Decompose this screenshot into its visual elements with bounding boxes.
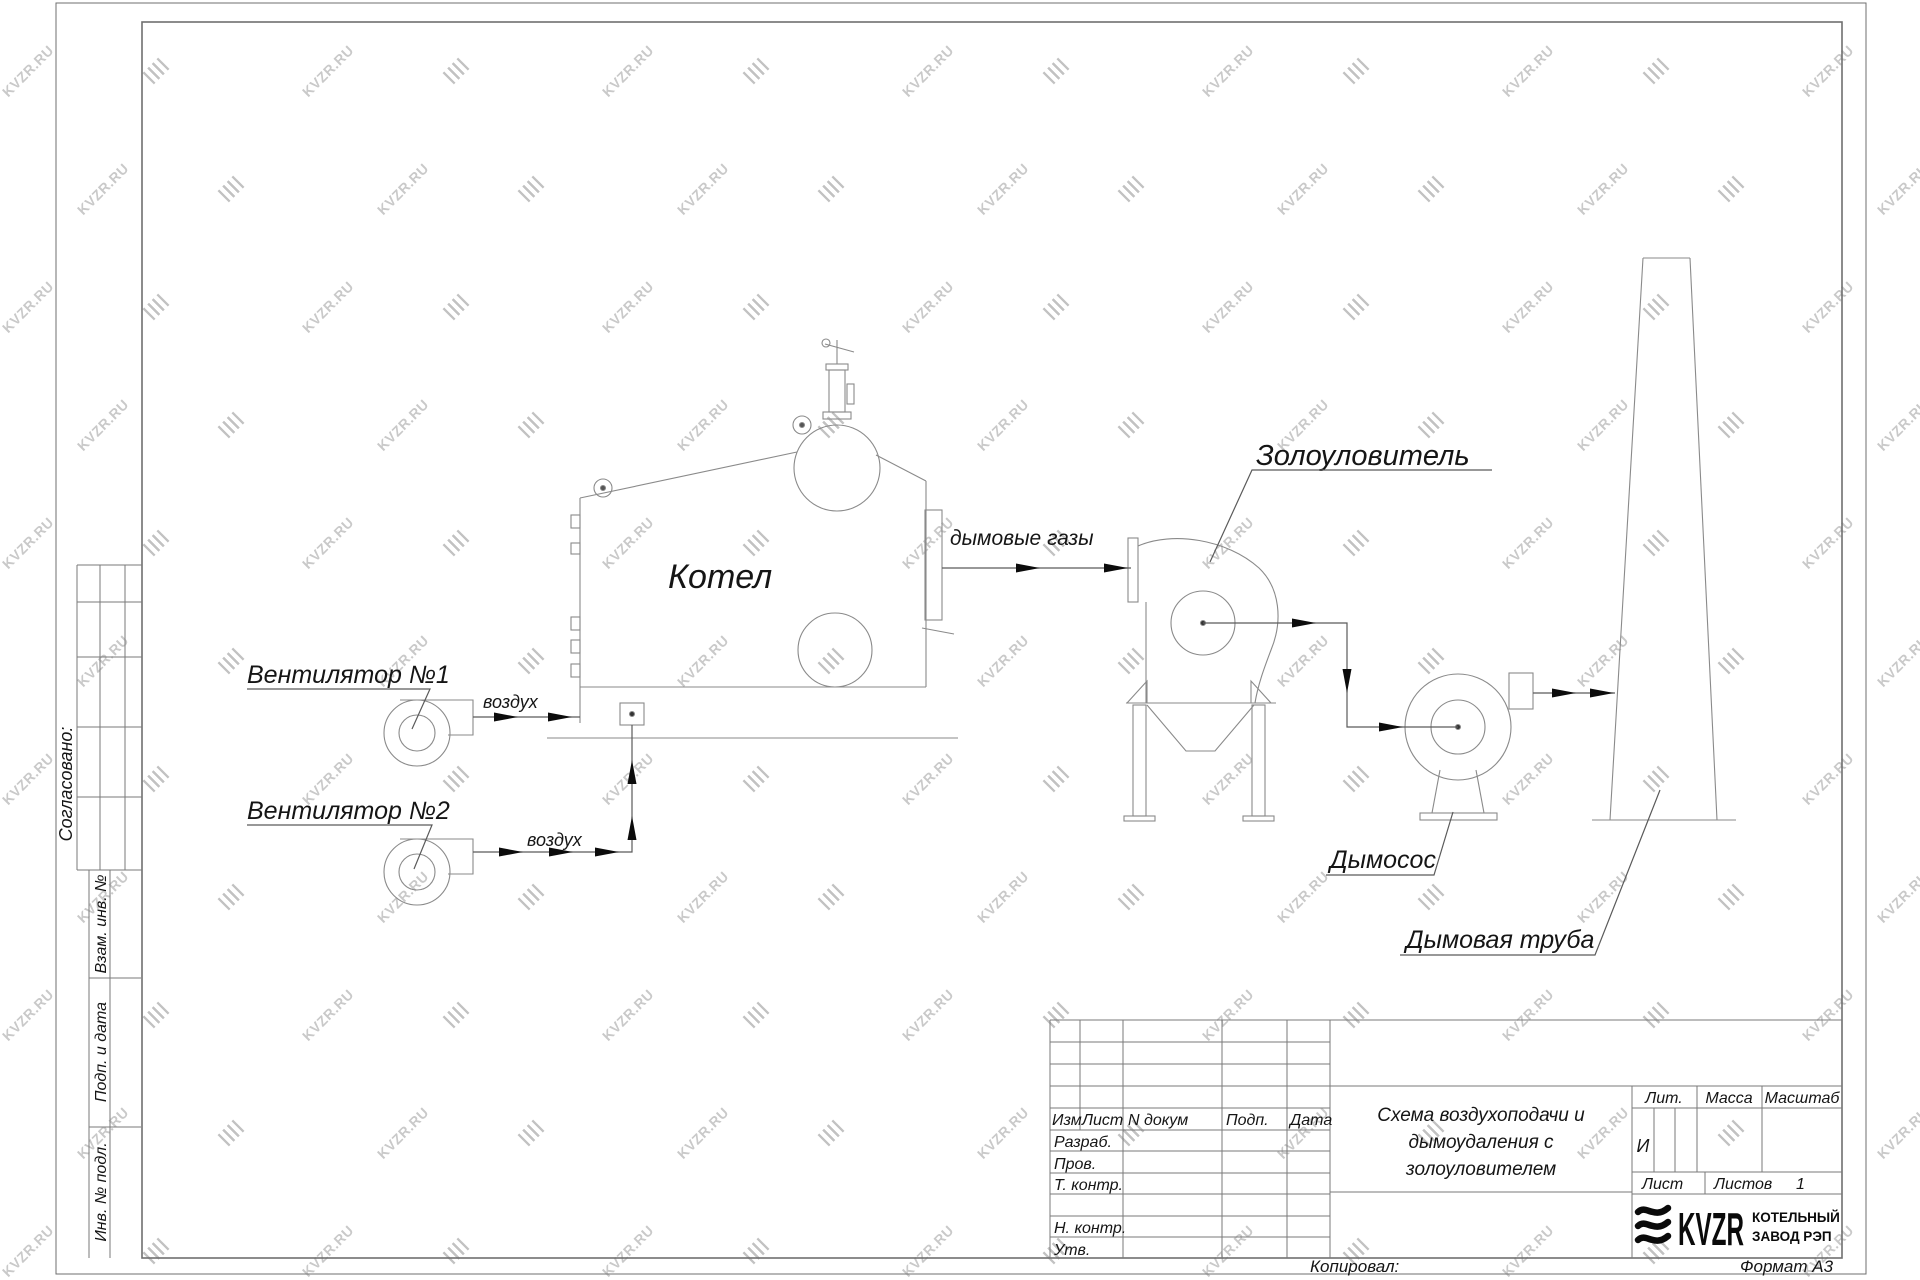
air-label-2: воздух — [527, 830, 583, 850]
podp-data-label: Подп. и дата — [93, 1002, 110, 1102]
doc-title-line2: дымоудаления с — [1408, 1132, 1554, 1153]
boiler-outlet-flange — [925, 510, 942, 620]
col-ndokum: N докум — [1128, 1112, 1188, 1129]
kvzr-logo: KVZR КОТЕЛЬНЫЙ ЗАВОД РЭП — [1638, 1203, 1840, 1255]
listov-value: 1 — [1796, 1176, 1805, 1193]
row-utv: Утв. — [1053, 1242, 1090, 1259]
doc-title-line1: Схема воздухоподачи и — [1377, 1105, 1585, 1126]
fan1-label: Вентилятор №1 — [247, 661, 450, 689]
col-list: Лист — [1081, 1112, 1123, 1129]
masshtab-label: Масштаб — [1765, 1090, 1841, 1107]
col-data: Дата — [1288, 1112, 1332, 1129]
ash-collector-label: Золоуловитель — [1256, 440, 1470, 472]
lit-value: И — [1637, 1136, 1650, 1156]
ash-collector-leader-line — [1210, 470, 1492, 562]
chimney — [1592, 258, 1736, 820]
vzam-inv-label: Взам. инв. № — [93, 875, 110, 974]
doc-title-line3: золоуловителем — [1405, 1159, 1556, 1180]
kvzr-logo-stripes-icon — [1638, 1208, 1668, 1241]
fan-1 — [384, 700, 473, 766]
fan2-leader-line — [247, 825, 432, 869]
approval-table — [77, 565, 142, 870]
chimney-label: Дымовая труба — [1403, 926, 1594, 954]
col-podp: Подп. — [1226, 1112, 1269, 1129]
row-prov: Пров. — [1054, 1156, 1096, 1173]
logo-text: KVZR — [1678, 1203, 1744, 1255]
format-label: Формат А3 — [1740, 1257, 1834, 1276]
logo-caption-line2: ЗАВОД РЭП — [1752, 1229, 1832, 1244]
fan-2 — [384, 839, 473, 905]
lit-label: Лит. — [1644, 1090, 1682, 1107]
cyclone-to-exhauster-line — [1203, 623, 1458, 727]
logo-caption-line1: КОТЕЛЬНЫЙ — [1752, 1210, 1840, 1225]
fan2-label: Вентилятор №2 — [247, 797, 450, 825]
outer-border — [56, 3, 1866, 1274]
list-label: Лист — [1641, 1176, 1683, 1193]
copied-label: Копировал: — [1310, 1257, 1400, 1276]
row-nkontr: Н. контр. — [1054, 1220, 1126, 1237]
row-tkontr: Т. контр. — [1054, 1177, 1123, 1194]
boiler-lower-drum — [798, 613, 872, 687]
inner-frame — [142, 22, 1842, 1258]
col-izm: Изм — [1052, 1112, 1082, 1129]
flue-gases-label: дымовые газы — [950, 527, 1094, 550]
schematic-drawing: Согласовано: Взам. инв. № Подп. и дата И… — [0, 0, 1920, 1280]
boiler-label: Котел — [668, 558, 772, 596]
safety-valve-icon — [822, 339, 854, 419]
boiler-upper-drum — [794, 425, 880, 511]
smoke-exhauster — [1405, 673, 1533, 820]
row-razrab: Разраб. — [1054, 1134, 1112, 1151]
boiler — [547, 339, 958, 738]
smoke-exhauster-label: Дымосос — [1327, 846, 1436, 874]
agreed-label: Согласовано: — [56, 727, 76, 842]
ash-collector — [1124, 538, 1278, 821]
drawing-sheet: KVZR.RUKVZR.RUKVZR.RUKVZR.RUKVZR.RUKVZR.… — [0, 0, 1920, 1280]
listov-label: Листов — [1713, 1176, 1772, 1193]
inv-podl-label: Инв. № подл. — [93, 1142, 110, 1241]
air-label-1: воздух — [483, 692, 539, 712]
massa-label: Масса — [1705, 1090, 1752, 1107]
